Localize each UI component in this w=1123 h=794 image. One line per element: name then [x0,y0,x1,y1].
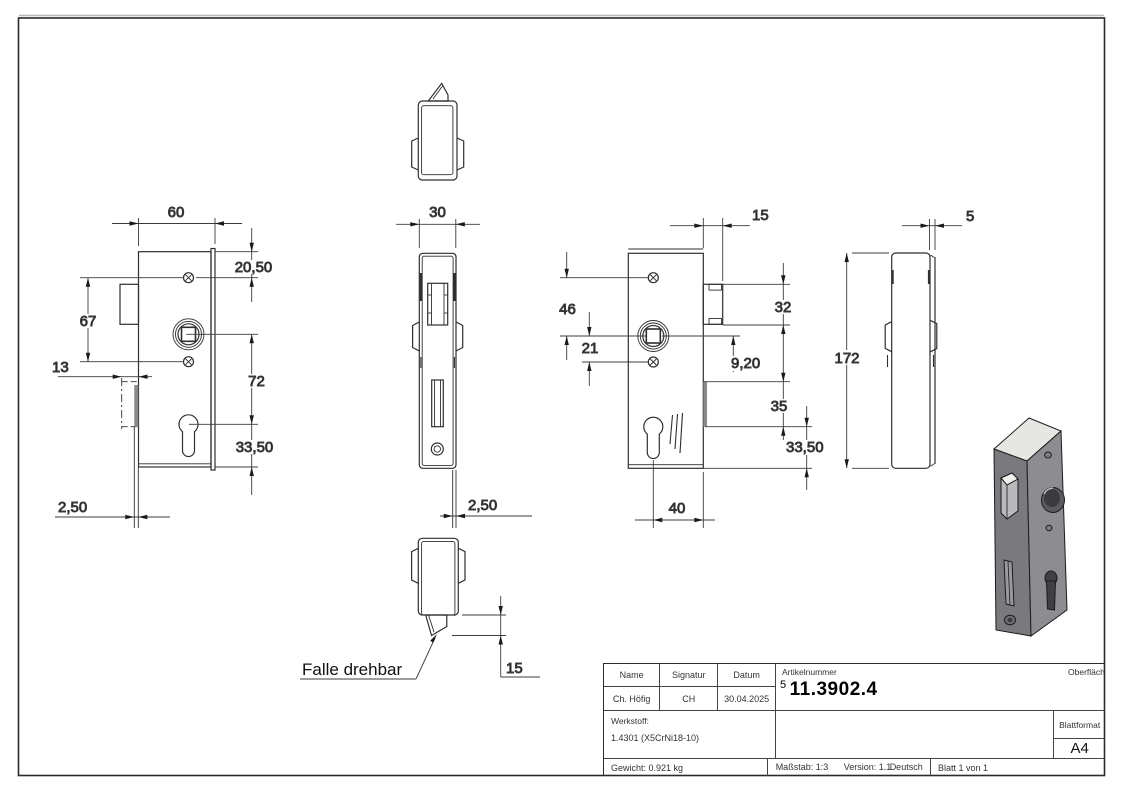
bolt-hidden [122,378,139,429]
dim-front-screw-span: 67 [80,313,97,330]
bolt-edge [703,382,707,427]
euro-cylinder-hole-back [644,417,663,458]
tb-signatur: CH [660,687,718,711]
tb-scale: Maßstab: 1:3 [776,762,829,772]
tb-sheet-count: Blatt 1 von 1 [931,759,1105,776]
screw-top-back [648,273,658,283]
title-block: Name Signatur Datum Ch. Höfig CH 30.04.2… [603,663,1104,775]
dim-back-bolt: 35 [771,398,788,415]
dim-back-euro-bottom: 33,50 [786,439,824,456]
iso-3d-view [994,418,1067,636]
dim-back-latch-height: 32 [775,299,792,316]
dim-front-euro-bottom: 33,50 [236,439,274,456]
dim-front-width: 60 [168,204,185,221]
dim-front-latch-depth: 13 [52,359,69,376]
tb-header-name: Name [604,664,660,687]
latch-tip-bottom [426,615,447,636]
tb-datum: 30.04.2025 [718,687,776,711]
dim-back-screw-spindle: 46 [559,301,576,318]
back-view [628,249,722,468]
hatch-marks [670,413,683,453]
right-side-view-dimensions: 5 172 [831,208,974,468]
bottom-view [412,538,465,635]
dim-right-height: 172 [834,350,859,367]
dim-bottom-latch: 15 [506,660,523,677]
tb-empty-cell [776,711,1054,759]
dim-front-spindle-euro: 72 [248,373,265,390]
dim-front-top-screw: 20,50 [235,259,273,276]
top-view [412,83,464,180]
falle-drehbar-label: Falle drehbar [302,660,403,679]
tb-version: Version: 1.1 [844,762,892,772]
side-view-dimensions: 30 2,50 [396,204,532,518]
tb-article-number: 511.3902.4 [780,679,878,701]
iso-cylinder-boss [1042,488,1065,513]
latch-opening [428,283,448,325]
tb-sheetformat-value: A4 [1054,739,1105,759]
latch-front [120,284,139,324]
dim-side-plate: 2,50 [468,497,497,514]
tb-material-cell: Werkstoff: 1.4301 (X5CrNi18-10) [604,711,776,759]
iso-screw-top [1045,452,1052,458]
dim-front-plate: 2,50 [58,499,87,516]
tb-language: Deutsch [890,762,923,772]
dim-back-latch-offset: 15 [752,207,769,224]
faceplate-hole [431,443,443,455]
tb-name: Ch. Höfig [604,687,660,711]
dim-side-width: 30 [429,204,446,221]
screw-bottom-back [648,357,658,367]
screw-top [184,273,194,283]
tb-material-label: Werkstoff: [611,716,649,726]
iso-latch [1001,473,1018,519]
sheet-frame [19,16,1105,776]
side-view [413,253,463,528]
tb-material-value: 1.4301 (X5CrNi18-10) [611,733,699,743]
drawing-sheet: 60 20,50 67 13 72 33,50 2,50 [0,0,1123,794]
tb-sheetformat-label: Blattformat [1054,711,1105,739]
tb-surface-label: Oberfläche: [1068,667,1105,677]
tb-article-prefix: 5 [780,679,787,691]
tb-scale-cell: Maßstab: 1:3 Version: 1.1 Deutsch [768,759,931,776]
screw-bottom [184,357,194,367]
bottom-view-dimensions: 15 [452,596,540,677]
tb-weight: Gewicht: 0.921 kg [604,759,768,776]
dim-back-offset: 9,20 [731,355,760,372]
back-view-dimensions: 15 46 21 32 9,20 35 [556,207,828,528]
dim-right-thickness: 5 [966,208,974,225]
bolt-slot [432,380,444,427]
tb-article-label: Artikelnummer [782,667,837,677]
tb-article-main: 11.3902.4 [790,679,878,700]
dim-back-spindle-screw: 21 [582,340,599,357]
dim-back-euro-edge: 40 [669,500,686,517]
tb-article-cell: Artikelnummer Oberfläche: Geschliffen Ko… [776,664,1105,711]
right-side-view [885,253,937,468]
tb-header-datum: Datum [718,664,776,687]
falle-drehbar-callout: Falle drehbar [300,634,437,679]
tb-header-signatur: Signatur [660,664,718,687]
latch-back [703,284,722,324]
front-view [120,249,215,529]
euro-cylinder-hole [179,415,198,457]
iso-screw-bottom [1046,525,1052,530]
